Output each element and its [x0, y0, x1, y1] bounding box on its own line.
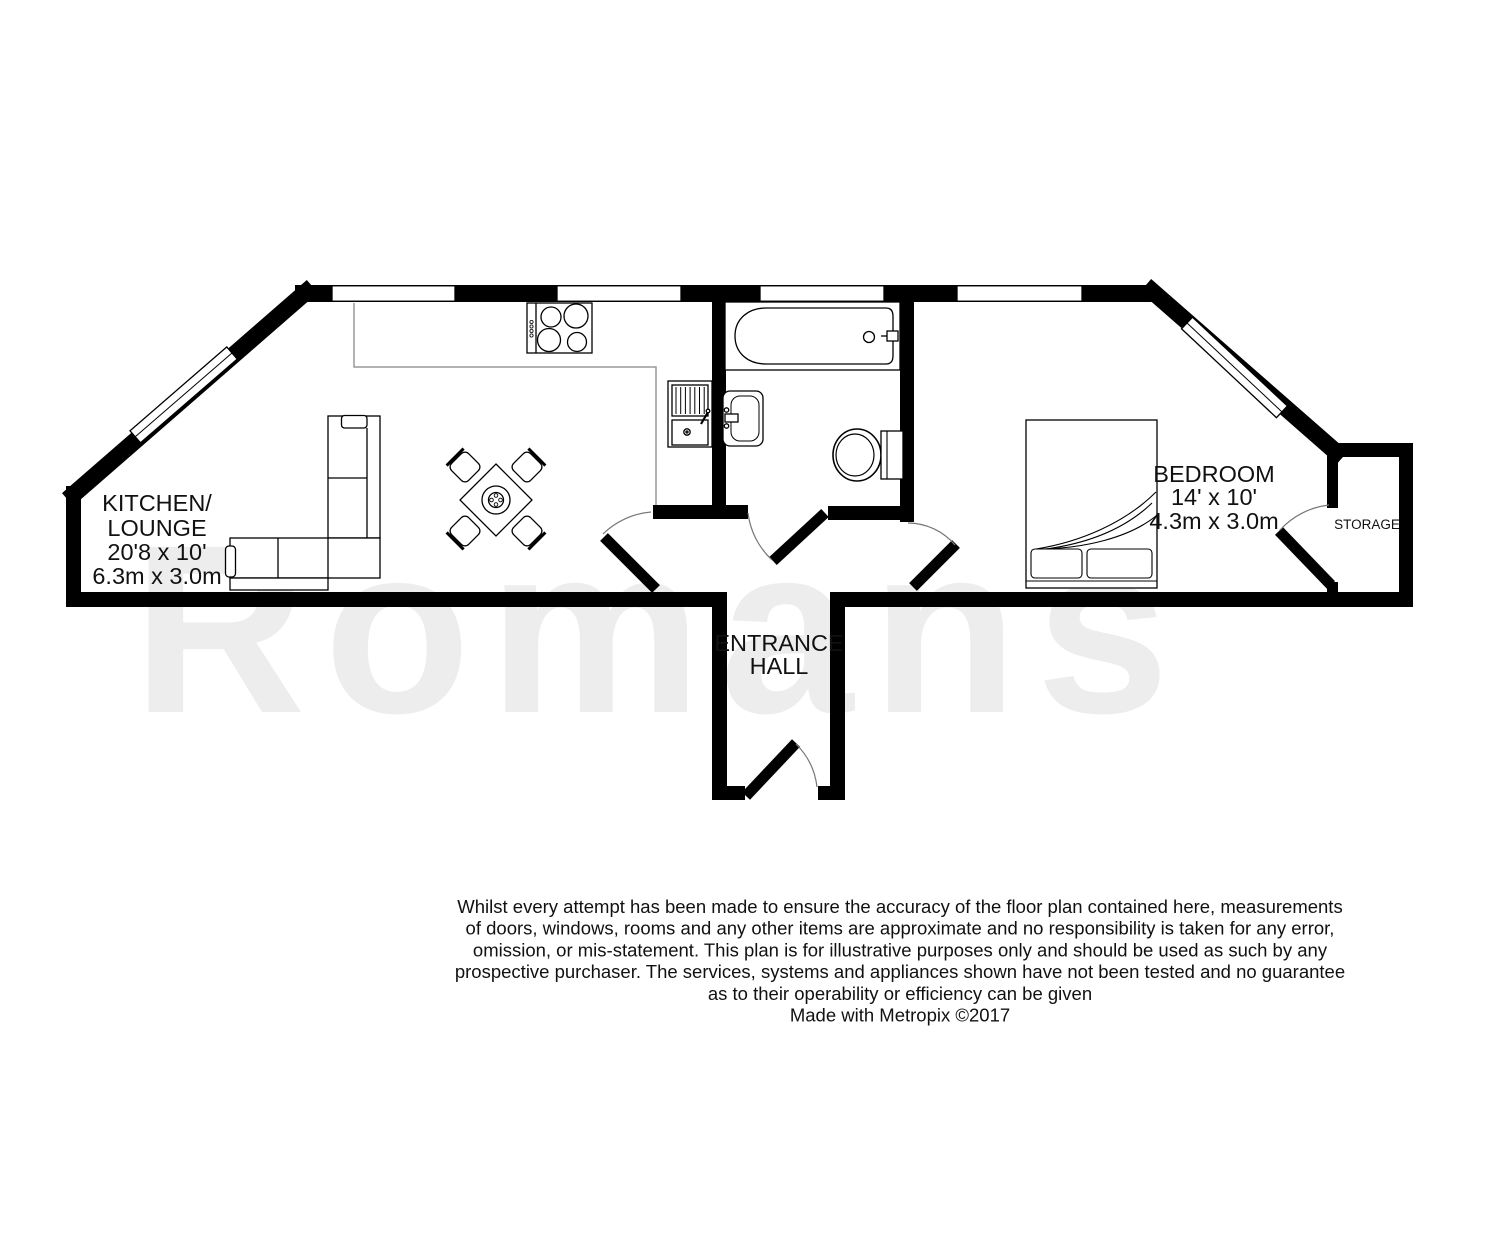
wall-hall-left — [712, 592, 727, 800]
wall-bottom-right — [830, 592, 1413, 607]
washbasin — [723, 391, 763, 446]
window-kitchen-2 — [557, 286, 681, 301]
window-diagonal-right — [1182, 317, 1288, 418]
stove-hob — [527, 303, 592, 353]
bedroom-dims-imperial: 14' x 10' — [1171, 484, 1257, 510]
wall-storage-right — [1399, 443, 1413, 607]
disclaimer-line: prospective purchaser. The services, sys… — [455, 961, 1345, 982]
disclaimer-block: Whilst every attempt has been made to en… — [455, 896, 1345, 1026]
disclaimer-line: Whilst every attempt has been made to en… — [457, 896, 1342, 917]
toilet — [833, 429, 903, 481]
window-bedroom — [957, 286, 1082, 301]
disclaimer-line: as to their operability or efficiency ca… — [708, 983, 1092, 1004]
wall-hall-foot-right — [818, 786, 845, 800]
dining-chair — [510, 449, 545, 484]
wall-stub-kitchen — [653, 505, 748, 519]
floorplan-svg: Romans — [0, 0, 1500, 1250]
bedroom-dims-metric: 4.3m x 3.0m — [1149, 508, 1278, 534]
entrance-hall-label-line2: HALL — [750, 653, 809, 679]
window-kitchen-1 — [332, 286, 455, 301]
metropix-credit: Made with Metropix ©2017 — [790, 1005, 1010, 1026]
wall-bathroom-right — [900, 300, 914, 522]
bed — [1026, 420, 1157, 588]
wall-stub-bedroom — [828, 506, 914, 520]
kitchen-lounge-label-line2: LOUNGE — [107, 515, 206, 541]
bathtub — [725, 302, 900, 370]
window-diagonal-left — [130, 347, 237, 443]
door-storage — [1279, 505, 1331, 585]
disclaimer-line: omission, or mis-statement. This plan is… — [473, 939, 1328, 960]
storage-label: STORAGE — [1334, 517, 1400, 532]
wall-hall-foot-left — [712, 786, 745, 800]
wall-bottom-left — [66, 592, 727, 607]
kitchen-sink — [668, 381, 712, 447]
wall-hall-right — [830, 592, 845, 800]
floorplan-page: Romans — [0, 0, 1500, 1250]
dining-set — [447, 449, 546, 550]
kitchen-lounge-dims-metric: 6.3m x 3.0m — [92, 563, 221, 589]
window-bathroom — [760, 286, 884, 301]
kitchen-lounge-label-line1: KITCHEN/ — [102, 490, 212, 516]
dining-chair — [447, 449, 482, 484]
disclaimer-line: of doors, windows, rooms and any other i… — [466, 918, 1335, 939]
kitchen-lounge-dims-imperial: 20'8 x 10' — [107, 539, 206, 565]
